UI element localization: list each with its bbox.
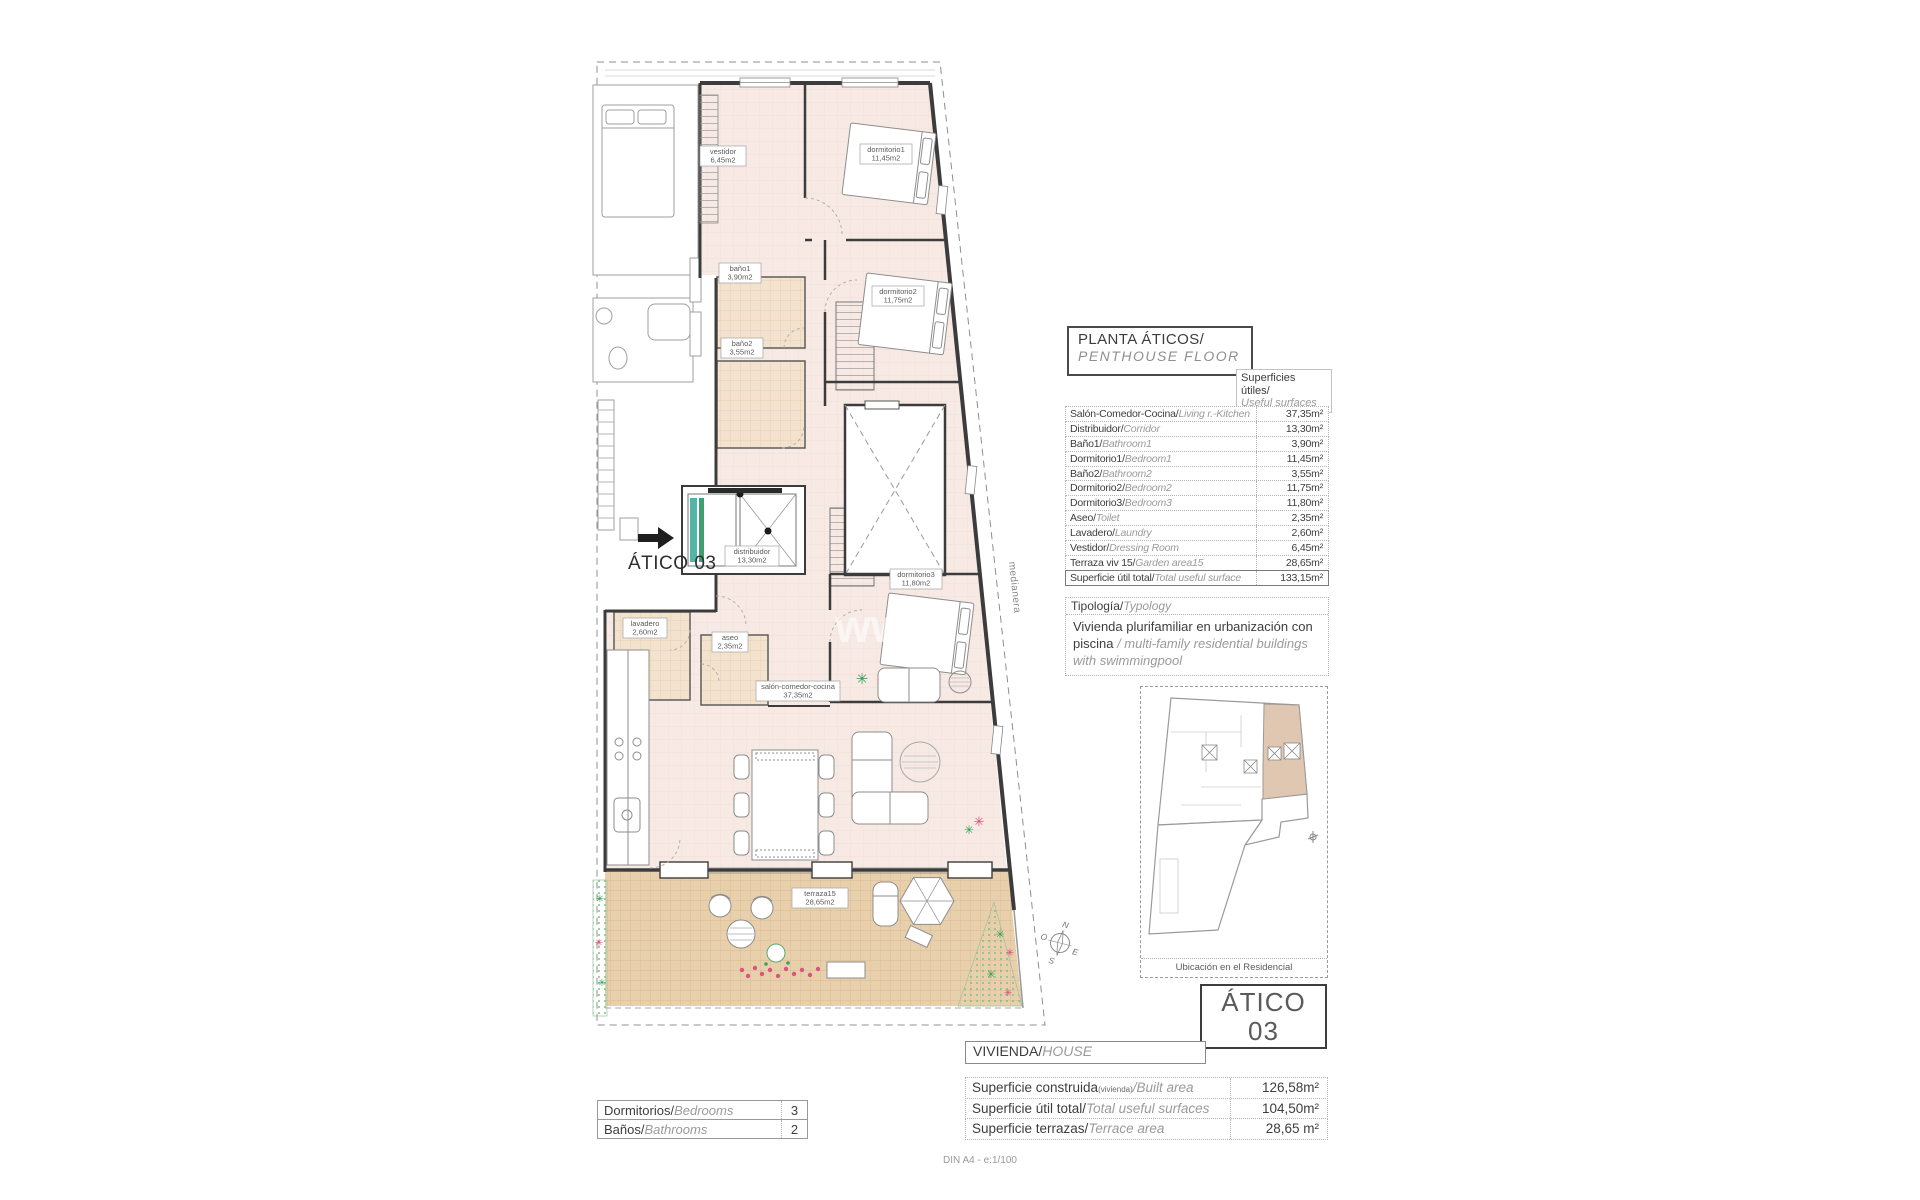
- svg-text:N: N: [1061, 919, 1070, 930]
- table-row: Dormitorio1/Bedroom111,45m²: [1065, 451, 1329, 467]
- rooms-count-table: Dormitorios/Bedrooms3 Baños/Bathrooms2: [597, 1101, 808, 1139]
- floor-plan: ✳ ✳ ✳ ✳ ✳ ✳ ✳ ✳ ✳ ✳ www. vestidor 6,45m2…: [590, 50, 1110, 1050]
- room-label-dormitorio1: dormitorio1 11,45m2: [860, 144, 912, 164]
- svg-text:6,45m2: 6,45m2: [710, 156, 735, 165]
- room-label-distribuidor: distribuidor 13,30m2: [725, 546, 779, 566]
- table-row: Dormitorio3/Bedroom311,80m²: [1065, 495, 1329, 511]
- svg-text:✳: ✳: [1004, 988, 1012, 999]
- table-row: Lavadero/Laundry2,60m²: [1065, 525, 1329, 541]
- table-row: Dormitorios/Bedrooms3: [597, 1100, 808, 1120]
- arrow-icon: [638, 527, 674, 549]
- bed-dormitorio2: [858, 273, 952, 355]
- watermark: www.: [834, 600, 953, 652]
- svg-text:✳: ✳: [598, 978, 606, 989]
- svg-text:✳: ✳: [595, 938, 603, 949]
- table-row: Aseo/Toilet2,35m²: [1065, 510, 1329, 526]
- room-label-bano2: baño2 3,55m2: [721, 338, 763, 358]
- svg-text:11,75m2: 11,75m2: [884, 296, 913, 305]
- svg-text:✳: ✳: [856, 671, 869, 688]
- plan-title-box: PLANTA ÁTICOS/ PENTHOUSE FLOOR: [1067, 326, 1253, 376]
- table-row: Distribuidor/Corridor13,30m²: [1065, 421, 1329, 437]
- svg-text:2,35m2: 2,35m2: [717, 642, 742, 651]
- plan-title-en: PENTHOUSE FLOOR: [1078, 348, 1242, 364]
- location-map-box: Ubicación en el Residencial: [1140, 686, 1328, 978]
- room-label-vestidor: vestidor 6,45m2: [700, 146, 746, 166]
- room-label-terraza: terraza15 28,65m2: [792, 888, 848, 908]
- table-row: Superficie terrazas/Terrace area28,65 m²: [965, 1118, 1328, 1140]
- compass-icon: N E S O: [1034, 915, 1085, 971]
- plan-title: PLANTA ÁTICOS/: [1078, 331, 1242, 348]
- svg-text:3,90m2: 3,90m2: [727, 273, 752, 282]
- table-row: Salón-Comedor-Cocina/Living r.-Kitchen37…: [1065, 406, 1329, 422]
- table-row: Baño1/Bathroom13,90m²: [1065, 436, 1329, 452]
- kitchen: [607, 650, 649, 865]
- svg-text:2,60m2: 2,60m2: [632, 628, 657, 637]
- svg-text:S: S: [1048, 955, 1056, 966]
- unit-number-line1: ÁTICO: [1202, 988, 1325, 1017]
- table-row: Vestidor/Dressing Room6,45m²: [1065, 540, 1329, 556]
- svg-text:✳: ✳: [596, 894, 604, 905]
- room-label-dormitorio2: dormitorio2 11,75m2: [872, 286, 924, 306]
- typology-box: Tipología/Typology Vivienda plurifamilia…: [1065, 597, 1329, 676]
- unit-label: ÁTICO 03: [628, 553, 716, 574]
- svg-text:3,55m2: 3,55m2: [729, 348, 754, 357]
- svg-text:O: O: [1040, 931, 1049, 942]
- svg-text:✳: ✳: [964, 823, 974, 837]
- room-label-dormitorio3: dormitorio3 11,80m2: [890, 569, 942, 589]
- table-row: Superficie construida(vivienda)/Built ar…: [965, 1077, 1328, 1099]
- table-row: Baños/Bathrooms2: [597, 1119, 808, 1139]
- dining-set: [734, 750, 834, 860]
- table-row: Terraza viv 15/Garden area1528,65m²: [1065, 555, 1329, 571]
- svg-text:28,65m2: 28,65m2: [805, 898, 834, 907]
- room-label-salon: salón-comedor-cocina 37,35m2: [756, 681, 840, 701]
- adjacent-unit: [593, 85, 701, 540]
- lightwell: [845, 401, 945, 579]
- room-label-aseo: aseo 2,35m2: [712, 632, 748, 652]
- svg-text:13,30m2: 13,30m2: [737, 556, 766, 565]
- svg-text:11,80m2: 11,80m2: [902, 579, 931, 588]
- location-map: [1141, 687, 1325, 947]
- house-table: Superficie construida(vivienda)/Built ar…: [965, 1078, 1328, 1140]
- table-row: Superficie útil total/Total useful surfa…: [965, 1098, 1328, 1120]
- mini-compass-icon: [1308, 831, 1318, 843]
- room-label-lavadero: lavadero 2,60m2: [623, 618, 667, 638]
- svg-text:✳: ✳: [1006, 948, 1014, 959]
- unit-number-line2: 03: [1202, 1017, 1325, 1046]
- surfaces-table: Salón-Comedor-Cocina/Living r.-Kitchen37…: [1065, 407, 1329, 586]
- svg-text:✳: ✳: [995, 929, 1004, 941]
- medianera-label: medianera: [1006, 561, 1022, 614]
- svg-text:11,45m2: 11,45m2: [872, 154, 901, 163]
- typology-header: Tipología/: [1071, 599, 1123, 613]
- surfaces-header: Superficies útiles/: [1241, 372, 1327, 397]
- svg-text:37,35m2: 37,35m2: [783, 691, 812, 700]
- room-label-bano1: baño1 3,90m2: [719, 263, 761, 283]
- table-row: Dormitorio2/Bedroom211,75m²: [1065, 480, 1329, 496]
- vivienda-header: VIVIENDA/: [973, 1043, 1042, 1059]
- location-caption: Ubicación en el Residencial: [1141, 958, 1327, 973]
- svg-text:✳: ✳: [986, 969, 995, 981]
- page: { "colors":{"floor_pink":"#f7eae4","tile…: [0, 0, 1920, 1200]
- unit-number-box: ÁTICO 03: [1200, 984, 1327, 1049]
- scale-note: DIN A4 - e:1/100: [880, 1155, 1080, 1166]
- table-row: Baño2/Bathroom23,55m²: [1065, 466, 1329, 482]
- svg-text:E: E: [1071, 946, 1079, 957]
- svg-text:✳: ✳: [974, 814, 985, 829]
- table-row-total: Superficie útil total/Total useful surfa…: [1065, 570, 1329, 586]
- vivienda-header-box: VIVIENDA/HOUSE: [965, 1041, 1206, 1064]
